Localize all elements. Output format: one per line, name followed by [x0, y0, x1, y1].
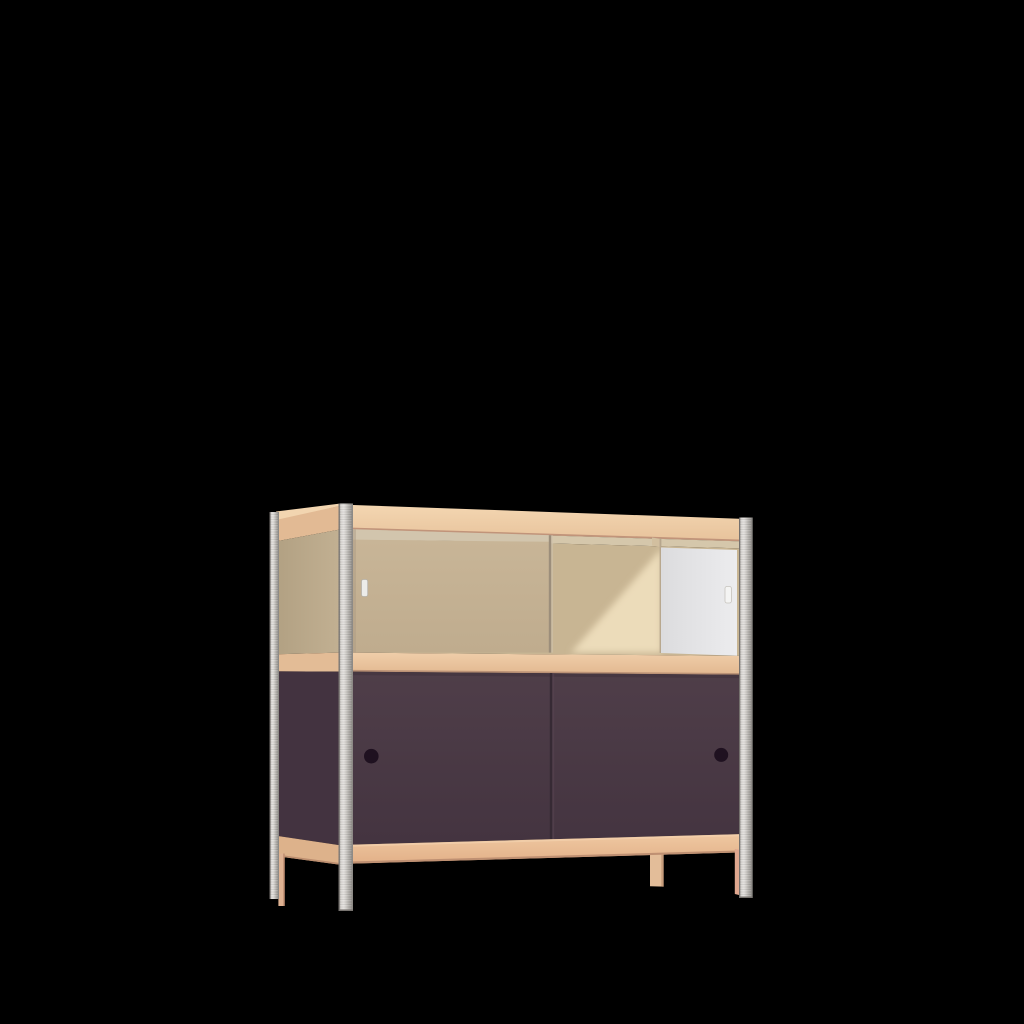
leg-back-left-texture [270, 512, 279, 899]
side-panel [276, 504, 340, 865]
leg-back-left-edge2 [278, 512, 279, 899]
glass-door-edge [549, 535, 552, 653]
glass-door-left [339, 540, 551, 653]
leg-front-left-edge [339, 504, 340, 912]
leg-front-right-edge [739, 518, 740, 899]
render-canvas [0, 0, 1024, 1024]
finger-hole-left [364, 749, 379, 764]
handle-left [362, 580, 368, 597]
leg-back-right [650, 854, 664, 887]
leg-front-right-wood-strip [735, 849, 739, 895]
door-right-edge-highlight [552, 673, 554, 842]
leg-front-left-edge2 [352, 504, 353, 912]
glass-door-edge-highlight [551, 535, 553, 652]
front-face [339, 505, 746, 865]
door-seam [550, 673, 553, 842]
leg-back-left-wood-edge [283, 854, 285, 907]
leg-front-left-texture [339, 504, 353, 912]
leg-front-right-texture [739, 518, 753, 899]
side-glass-panel [278, 530, 340, 655]
handle-right [725, 587, 731, 604]
sliding-doors-purple [339, 672, 746, 846]
leg-front-left [339, 504, 353, 912]
sideboard-render [0, 0, 1024, 1024]
leg-back-right-edge [661, 854, 663, 887]
leg-back-left-edge [270, 512, 271, 899]
finger-hole-right [714, 748, 728, 762]
glass-door-inner-shadow [353, 529, 357, 652]
side-door-panel [278, 671, 340, 845]
leg-front-right-edge2 [751, 518, 752, 899]
leg-front-right-foot [739, 897, 753, 899]
leg-front-left-foot [339, 910, 353, 912]
side-middle-band [278, 653, 340, 672]
